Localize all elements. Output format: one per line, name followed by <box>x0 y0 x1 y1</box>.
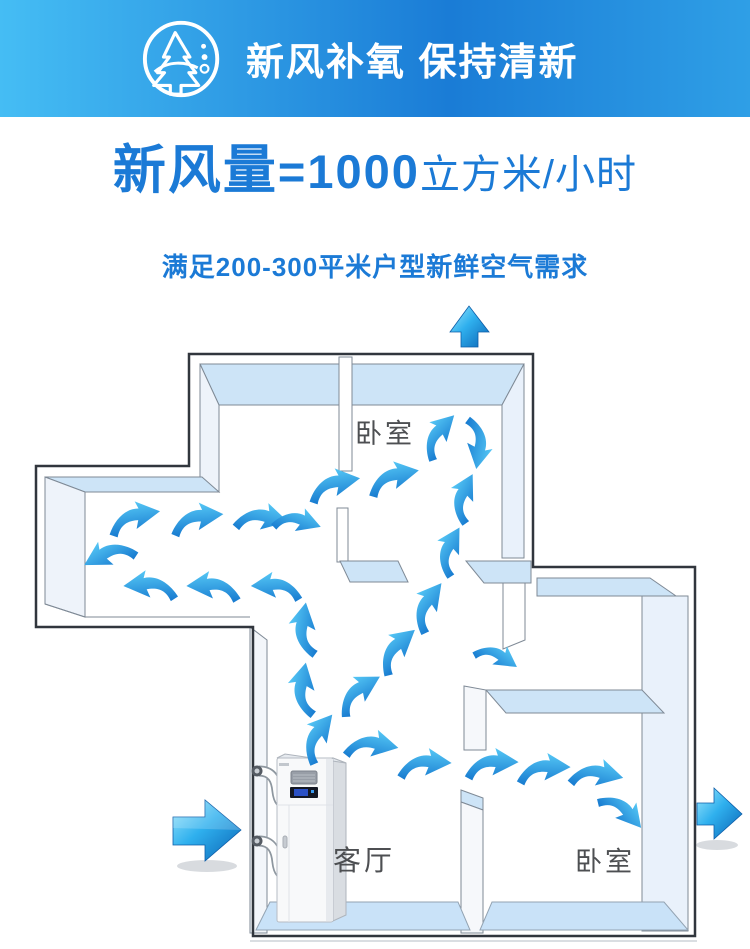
room-label-bedroom-top: 卧室 <box>355 412 415 451</box>
headline: 新风量 =1000 立方米/小时 <box>0 128 750 204</box>
unit-door-handle <box>283 836 287 848</box>
room-label-bedroom-bottom: 卧室 <box>575 840 635 879</box>
header-banner: 新风补氧 保持清新 <box>0 0 750 117</box>
unit-display-glow <box>294 789 308 796</box>
inlet-arrow-gloss <box>173 800 241 830</box>
right-outlet-arrow <box>697 788 742 839</box>
top-outlet-arrow <box>450 306 489 347</box>
room-label-living-room: 客厅 <box>333 839 395 879</box>
unit-display-dot <box>311 790 314 793</box>
header-title: 新风补氧 保持清新 <box>246 31 579 86</box>
unit-front-shading <box>326 759 333 921</box>
headline-value: =1000 <box>278 144 420 199</box>
right-outlet-arrow-shadow <box>696 840 738 850</box>
fresh-air-tree-icon <box>140 15 228 103</box>
inlet-arrow-shadow <box>177 860 237 872</box>
headline-label: 新风量 <box>113 128 278 204</box>
headline-unit: 立方米/小时 <box>420 142 637 200</box>
unit-logo <box>279 763 289 766</box>
subtitle: 满足200-300平米户型新鲜空气需求 <box>0 247 750 284</box>
